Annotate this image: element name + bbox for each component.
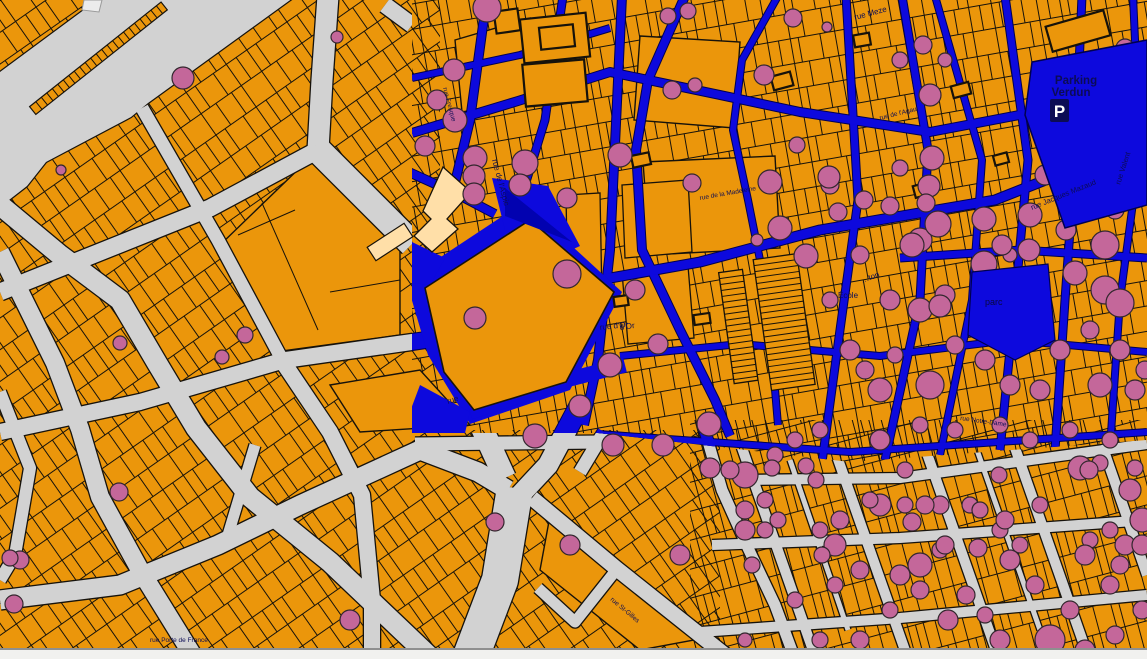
svg-text:rue Porte de France: rue Porte de France [150, 637, 208, 644]
svg-text:Parking: Parking [1055, 75, 1097, 87]
svg-text:P: P [1054, 102, 1065, 121]
svg-text:École: École [838, 291, 859, 300]
svg-text:Verdun: Verdun [1052, 87, 1091, 99]
svg-text:parc: parc [985, 297, 1003, 307]
